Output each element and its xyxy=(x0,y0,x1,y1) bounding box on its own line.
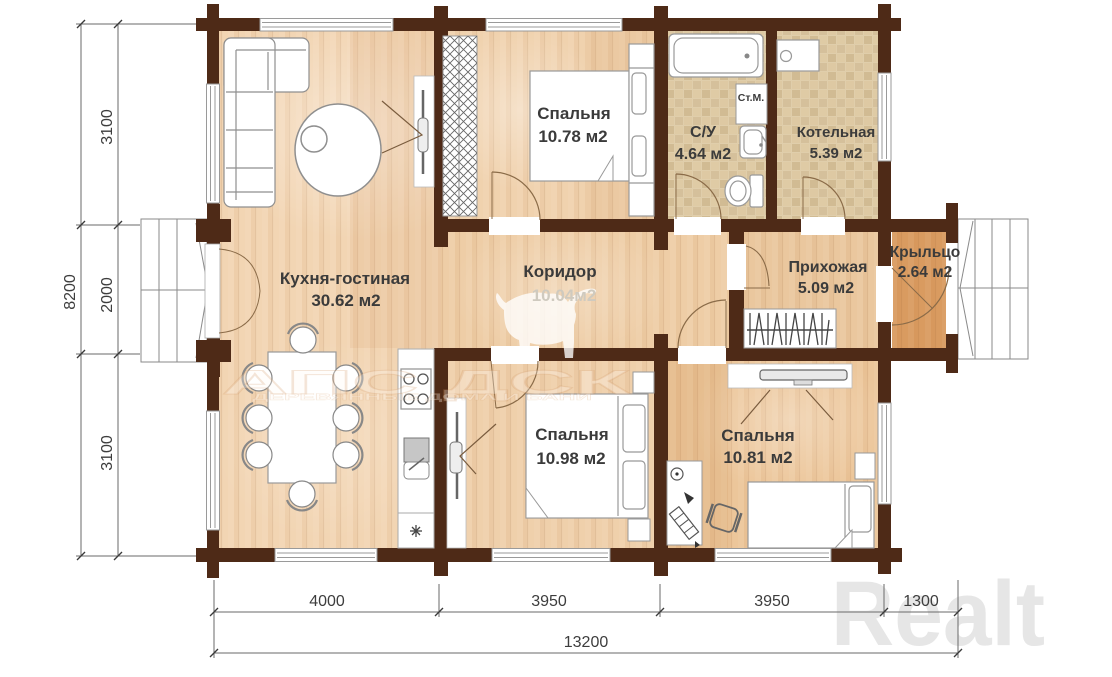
svg-text:1300: 1300 xyxy=(903,593,939,610)
svg-text:5.39 м2: 5.39 м2 xyxy=(810,145,863,162)
svg-text:Ст.М.: Ст.М. xyxy=(738,92,764,104)
svg-text:2000: 2000 xyxy=(99,277,116,313)
svg-text:4000: 4000 xyxy=(309,593,345,610)
svg-text:10.81 м2: 10.81 м2 xyxy=(723,448,792,467)
svg-text:Realt: Realt xyxy=(831,563,1045,665)
svg-text:2.64 м2: 2.64 м2 xyxy=(898,264,953,281)
svg-text:Кухня-гостиная: Кухня-гостиная xyxy=(280,269,410,288)
svg-text:3950: 3950 xyxy=(754,593,790,610)
svg-text:10.04м2: 10.04м2 xyxy=(532,286,597,305)
svg-text:3100: 3100 xyxy=(99,435,116,471)
svg-text:Прихожая: Прихожая xyxy=(789,259,868,276)
svg-text:3100: 3100 xyxy=(99,109,116,145)
svg-text:Спальня: Спальня xyxy=(535,425,608,444)
svg-text:8200: 8200 xyxy=(62,274,79,310)
svg-text:Спальня: Спальня xyxy=(721,426,794,445)
svg-text:ДЕРЕВЯННЫЕ ДОМА И БАНИ: ДЕРЕВЯННЫЕ ДОМА И БАНИ xyxy=(252,392,592,402)
svg-text:Спальня: Спальня xyxy=(537,104,610,123)
svg-text:Коридор: Коридор xyxy=(523,262,596,281)
svg-text:С/У: С/У xyxy=(690,124,717,141)
svg-text:Крыльцо: Крыльцо xyxy=(890,244,961,261)
svg-text:3950: 3950 xyxy=(531,593,567,610)
svg-text:Котельная: Котельная xyxy=(797,124,876,141)
svg-text:10.98 м2: 10.98 м2 xyxy=(536,449,605,468)
svg-text:30.62 м2: 30.62 м2 xyxy=(311,291,380,310)
svg-text:10.78 м2: 10.78 м2 xyxy=(538,127,607,146)
svg-text:13200: 13200 xyxy=(564,634,609,651)
svg-text:5.09 м2: 5.09 м2 xyxy=(798,280,854,297)
svg-text:4.64 м2: 4.64 м2 xyxy=(675,146,731,163)
